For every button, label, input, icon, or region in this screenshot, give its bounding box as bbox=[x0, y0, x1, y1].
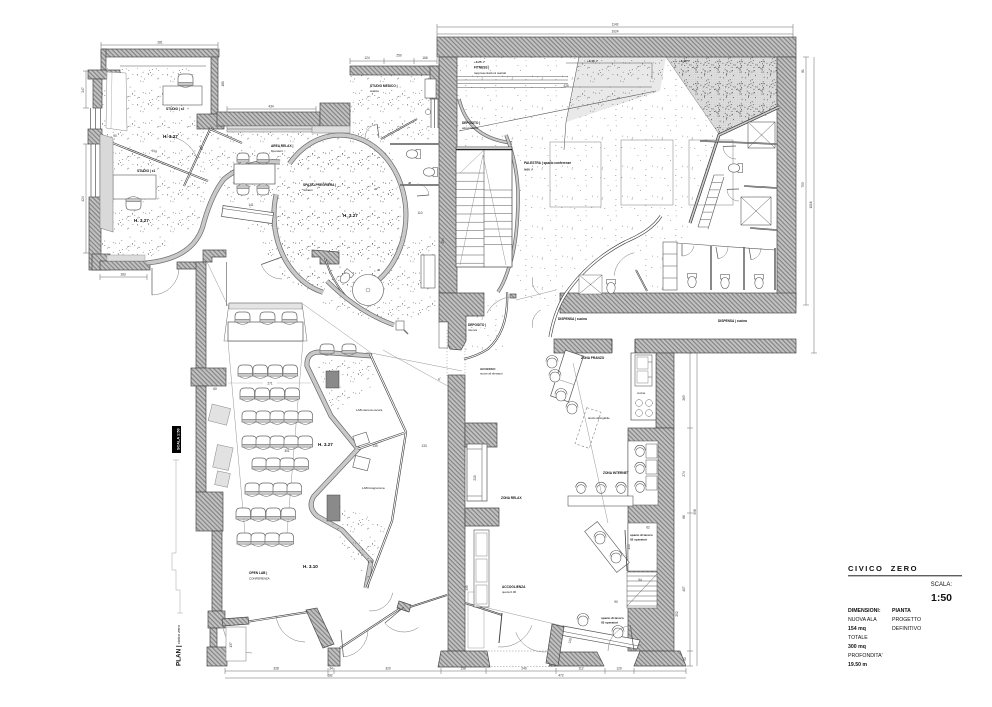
svg-text:rappresentazioni teatrali: rappresentazioni teatrali bbox=[474, 71, 506, 75]
svg-text:263: 263 bbox=[682, 395, 686, 401]
svg-text:998: 998 bbox=[693, 509, 697, 515]
svg-text:riserva: riserva bbox=[468, 328, 477, 332]
svg-text:H. 3.27: H. 3.27 bbox=[134, 218, 149, 223]
svg-text:stanza: stanza bbox=[370, 89, 379, 93]
svg-text:STUDIO | x2: STUDIO | x2 bbox=[166, 107, 184, 111]
svg-text:300 mq: 300 mq bbox=[848, 644, 866, 650]
svg-text:tavolo allungabile: tavolo allungabile bbox=[588, 416, 610, 420]
svg-text:DISPENSA | cucina: DISPENSA | cucina bbox=[558, 317, 587, 321]
svg-text:139: 139 bbox=[372, 444, 378, 448]
svg-text:137: 137 bbox=[229, 642, 233, 648]
svg-text:154 mq: 154 mq bbox=[848, 626, 866, 632]
svg-text:DISPENSA | cucina: DISPENSA | cucina bbox=[718, 319, 747, 323]
svg-text:STUDIO MEDICO |: STUDIO MEDICO | bbox=[370, 84, 398, 88]
svg-text:281: 281 bbox=[157, 41, 163, 45]
svg-text:AREA RELAX |: AREA RELAX | bbox=[271, 144, 293, 148]
svg-text:PLAN |: PLAN | bbox=[176, 645, 183, 666]
svg-text:158: 158 bbox=[460, 667, 466, 671]
svg-text:DIMENSIONI:: DIMENSIONI: bbox=[848, 608, 881, 614]
svg-text:434: 434 bbox=[268, 105, 274, 109]
svg-text:spazio di lavoro: spazio di lavoro bbox=[601, 616, 624, 620]
svg-text:OPEN LAB |: OPEN LAB | bbox=[249, 571, 267, 575]
svg-text:81: 81 bbox=[801, 69, 805, 73]
svg-text:180: 180 bbox=[221, 81, 225, 87]
svg-text:425: 425 bbox=[563, 84, 569, 88]
svg-text:02 operatori: 02 operatori bbox=[630, 538, 647, 542]
svg-text:TOTALE: TOTALE bbox=[848, 635, 868, 641]
svg-text:1:50: 1:50 bbox=[931, 592, 952, 604]
svg-text:attrezzature: attrezzature bbox=[462, 126, 478, 130]
svg-text:SCALA 1:50: SCALA 1:50 bbox=[177, 428, 181, 450]
svg-text:110: 110 bbox=[417, 211, 422, 215]
svg-text:cucina: cucina bbox=[637, 391, 646, 395]
svg-text:301: 301 bbox=[284, 449, 290, 453]
svg-text:ZONA INTERNET: ZONA INTERNET bbox=[603, 471, 629, 475]
svg-text:435: 435 bbox=[465, 585, 469, 591]
svg-text:0.00 ↗: 0.00 ↗ bbox=[524, 168, 534, 172]
svg-text:d6: d6 bbox=[377, 268, 381, 272]
svg-text:DEFINITIVO: DEFINITIVO bbox=[892, 626, 921, 632]
svg-text:DEPOSITO |: DEPOSITO | bbox=[468, 323, 486, 327]
svg-text:753: 753 bbox=[801, 182, 805, 188]
svg-text:424: 424 bbox=[81, 196, 85, 202]
svg-text:141: 141 bbox=[248, 203, 254, 207]
svg-text:240: 240 bbox=[521, 667, 527, 671]
svg-text:PALESTRA | spazio conferenze: PALESTRA | spazio conferenze bbox=[524, 161, 571, 165]
svg-text:1016: 1016 bbox=[809, 201, 813, 208]
svg-text:90: 90 bbox=[614, 600, 618, 604]
svg-text:60: 60 bbox=[213, 387, 217, 391]
svg-text:150: 150 bbox=[627, 544, 631, 550]
svg-text:210: 210 bbox=[473, 475, 477, 481]
svg-text:ZONA RELAX: ZONA RELAX bbox=[501, 496, 522, 500]
svg-text:1143: 1143 bbox=[612, 23, 619, 27]
svg-text:120: 120 bbox=[616, 667, 622, 671]
svg-text:H. 3.27: H. 3.27 bbox=[343, 213, 358, 218]
svg-text:34: 34 bbox=[329, 667, 333, 671]
svg-text:H. 3.27: H. 3.27 bbox=[163, 134, 178, 139]
svg-text:d4: d4 bbox=[374, 187, 378, 191]
svg-text:166: 166 bbox=[422, 56, 428, 60]
svg-text:operatori: operatori bbox=[271, 149, 283, 153]
svg-text:66: 66 bbox=[682, 515, 686, 519]
svg-text:247: 247 bbox=[81, 87, 85, 93]
svg-text:ACCESSO:: ACCESSO: bbox=[480, 367, 496, 371]
svg-text:DEPOSITO |: DEPOSITO | bbox=[462, 121, 480, 125]
svg-text:SCALA:: SCALA: bbox=[931, 582, 953, 588]
svg-text:civico zero: civico zero bbox=[176, 624, 181, 644]
svg-text:328: 328 bbox=[273, 667, 279, 671]
svg-text:spazio di lavoro: spazio di lavoro bbox=[630, 533, 653, 537]
svg-text:+3.40 ↗: +3.40 ↗ bbox=[679, 59, 690, 63]
svg-text:320: 320 bbox=[385, 667, 391, 671]
svg-text:124: 124 bbox=[364, 56, 370, 60]
svg-text:LAB.fotogramma: LAB.fotogramma bbox=[362, 486, 385, 490]
svg-text:254: 254 bbox=[441, 238, 445, 244]
svg-text:CONFERENZA: CONFERENZA bbox=[249, 577, 270, 581]
svg-text:54: 54 bbox=[638, 578, 642, 582]
svg-text:90: 90 bbox=[113, 134, 117, 138]
svg-text:riunioni: riunioni bbox=[303, 188, 313, 192]
svg-text:62: 62 bbox=[646, 526, 650, 530]
svg-text:1024: 1024 bbox=[611, 30, 618, 34]
svg-text:112: 112 bbox=[578, 667, 583, 671]
svg-text:H. 3.27: H. 3.27 bbox=[318, 442, 333, 447]
svg-text:250: 250 bbox=[396, 54, 402, 58]
svg-text:quota 0.00: quota 0.00 bbox=[502, 590, 517, 594]
svg-text:nuove ali elevatori: nuove ali elevatori bbox=[480, 372, 503, 376]
svg-text:PROGETTO: PROGETTO bbox=[892, 617, 921, 623]
svg-text:252: 252 bbox=[675, 611, 679, 617]
svg-text:52: 52 bbox=[683, 657, 687, 661]
svg-text:271: 271 bbox=[267, 382, 273, 386]
svg-text:PROFONDITA': PROFONDITA' bbox=[848, 653, 883, 659]
svg-text:NUOVA ALA: NUOVA ALA bbox=[848, 617, 877, 623]
svg-text:+3.25 ↗: +3.25 ↗ bbox=[474, 60, 485, 64]
svg-text:PIANTA: PIANTA bbox=[892, 608, 911, 614]
svg-text:274: 274 bbox=[682, 471, 686, 477]
svg-text:19.50 m: 19.50 m bbox=[848, 662, 867, 668]
svg-text:178: 178 bbox=[367, 560, 373, 564]
svg-text:+3.40 ↗: +3.40 ↗ bbox=[587, 59, 598, 63]
svg-text:ZONA PRANZO: ZONA PRANZO bbox=[581, 356, 605, 360]
svg-text:183: 183 bbox=[120, 273, 126, 277]
svg-text:682: 682 bbox=[327, 674, 333, 678]
svg-text:SPAZIO PREGHIERA |: SPAZIO PREGHIERA | bbox=[303, 183, 336, 187]
svg-text:STUDIO | x1: STUDIO | x1 bbox=[137, 169, 155, 173]
svg-text:FITNESS |: FITNESS | bbox=[474, 66, 489, 70]
svg-text:d8: d8 bbox=[408, 181, 412, 185]
svg-text:LAB.camera oscura: LAB.camera oscura bbox=[356, 408, 383, 412]
svg-text:ACCOGLIENZA: ACCOGLIENZA bbox=[502, 585, 526, 589]
svg-text:407: 407 bbox=[682, 586, 686, 592]
svg-text:03 operatori: 03 operatori bbox=[601, 621, 618, 625]
svg-text:133: 133 bbox=[421, 444, 427, 448]
svg-text:H. 3.10: H. 3.10 bbox=[303, 564, 318, 569]
svg-text:CIVICO ZERO: CIVICO ZERO bbox=[848, 564, 918, 573]
svg-text:472: 472 bbox=[558, 674, 564, 678]
